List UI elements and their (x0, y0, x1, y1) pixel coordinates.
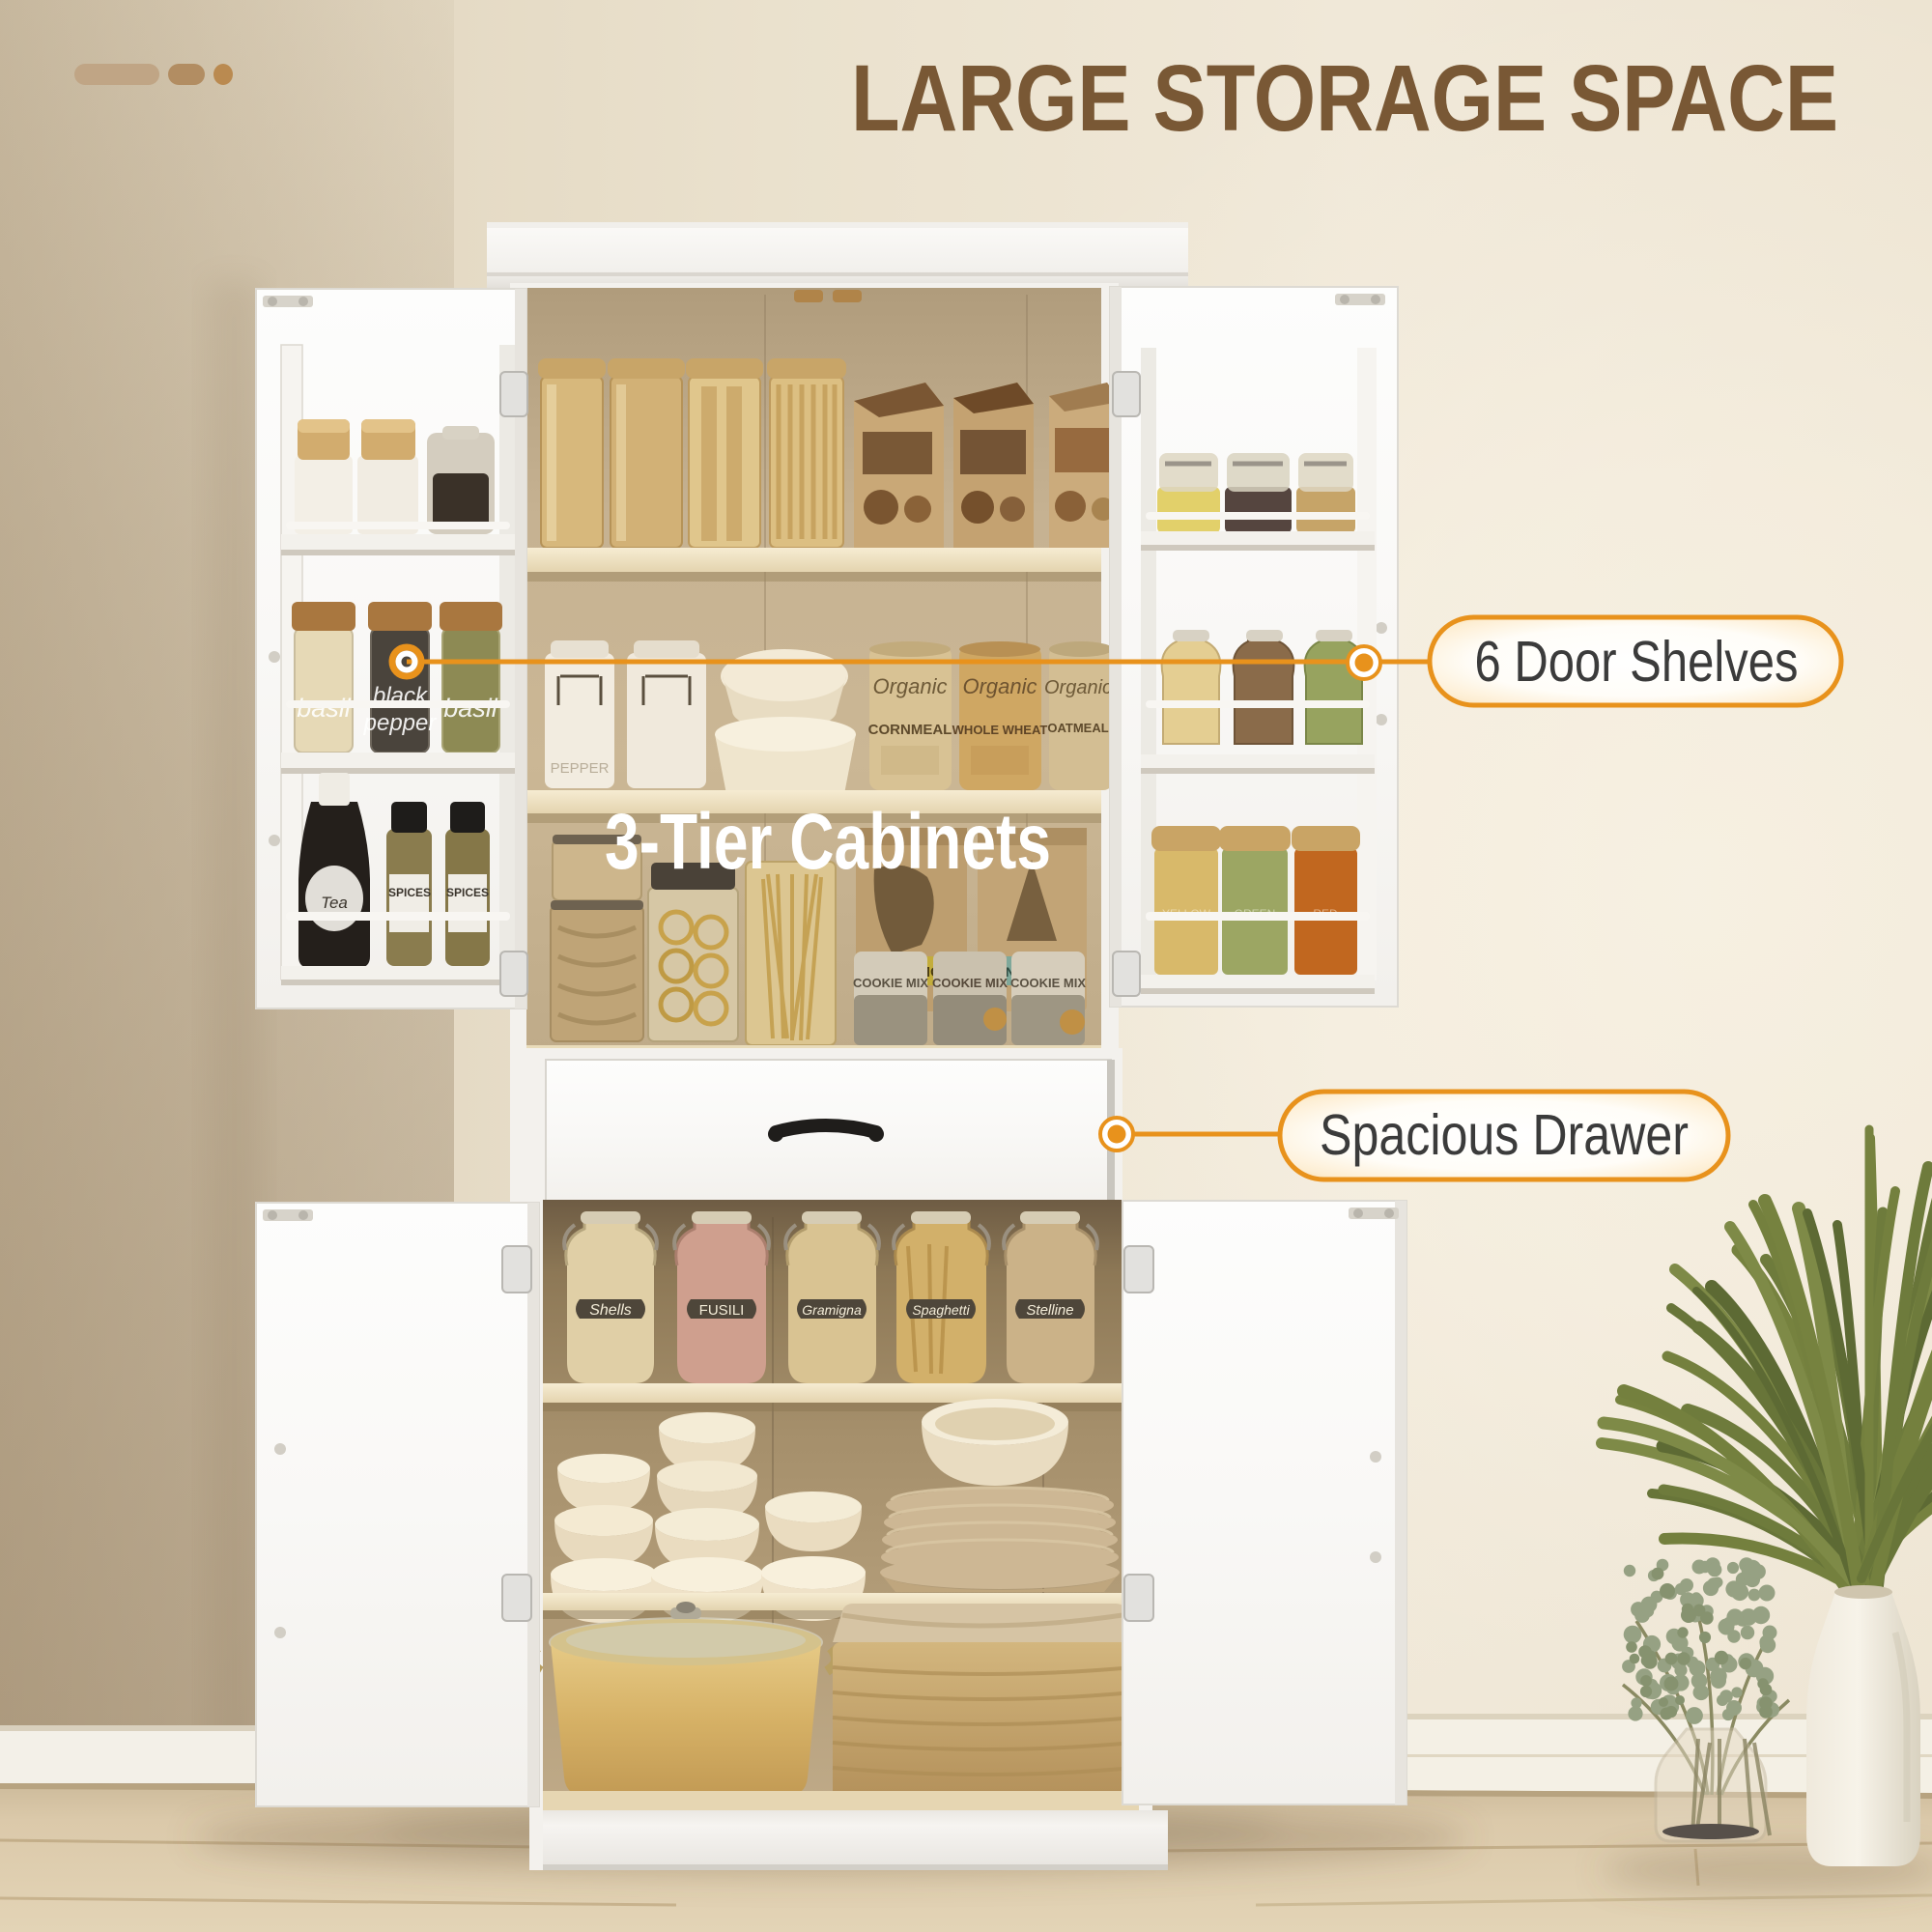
svg-text:COOKIE MIX: COOKIE MIX (1010, 976, 1086, 990)
svg-text:OATMEAL: OATMEAL (1047, 721, 1108, 735)
svg-text:Tea: Tea (321, 894, 348, 912)
svg-text:COOKIE MIX: COOKIE MIX (932, 976, 1008, 990)
svg-text:SPICES: SPICES (388, 886, 431, 899)
svg-text:pepper: pepper (363, 710, 438, 736)
svg-text:WHOLE WHEAT: WHOLE WHEAT (952, 723, 1048, 737)
svg-text:Spaghetti: Spaghetti (912, 1302, 970, 1318)
svg-text:3-Tier Cabinets: 3-Tier Cabinets (605, 798, 1051, 886)
svg-text:CORNMEAL: CORNMEAL (868, 722, 952, 738)
svg-text:Gramigna: Gramigna (802, 1302, 862, 1318)
svg-text:FUSILI: FUSILI (699, 1302, 745, 1319)
svg-text:PEPPER: PEPPER (551, 760, 610, 777)
svg-text:Shells: Shells (589, 1302, 632, 1319)
svg-text:6 Door Shelves: 6 Door Shelves (1475, 630, 1799, 694)
svg-text:COOKIE MIX: COOKIE MIX (853, 976, 928, 990)
svg-text:Spacious Drawer: Spacious Drawer (1320, 1103, 1689, 1167)
svg-text:Organic: Organic (872, 674, 947, 698)
svg-text:Organic: Organic (1044, 677, 1112, 698)
svg-text:Organic: Organic (962, 674, 1037, 698)
svg-text:LARGE STORAGE SPACE: LARGE STORAGE SPACE (851, 45, 1838, 151)
svg-text:Stelline: Stelline (1026, 1302, 1073, 1319)
svg-text:SPICES: SPICES (446, 886, 489, 899)
